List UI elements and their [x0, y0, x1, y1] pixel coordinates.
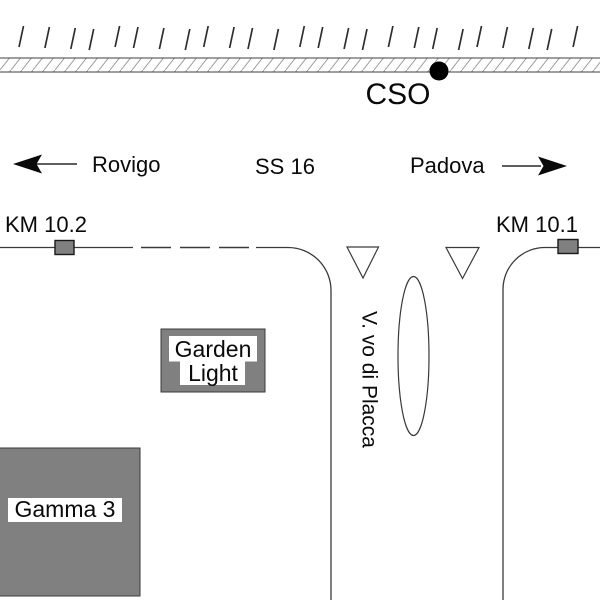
railway-tick	[19, 26, 24, 47]
railway-tick	[45, 27, 50, 48]
arrow-right-icon	[502, 157, 567, 176]
traffic-island-ellipse	[398, 277, 429, 436]
map-canvas: CSO Rovigo SS 16 Padova KM 10.2 KM 10.1	[0, 0, 600, 600]
junction-symbols: V. vo di Placca	[347, 247, 479, 448]
arrow-left-icon	[13, 155, 77, 174]
railway-band	[0, 58, 600, 72]
railway-tick	[248, 28, 253, 49]
railway-tick	[185, 29, 190, 50]
railway-tick	[159, 28, 164, 49]
railway-tick	[274, 29, 279, 50]
yield-triangle-left	[347, 247, 379, 278]
building-garden-light: Garden Light	[161, 329, 265, 392]
building-garden-light-label-line2: Light	[188, 360, 238, 386]
direction-rovigo-label: Rovigo	[92, 152, 160, 177]
cso-dot	[430, 62, 449, 81]
km-right-label: KM 10.1	[496, 212, 578, 237]
railway-tick	[230, 27, 235, 48]
main-road-left-curve-into-street	[256, 248, 331, 600]
railway-tick	[115, 26, 120, 47]
railway-tick	[363, 29, 368, 50]
railway-tick	[71, 28, 76, 49]
map-drawing: CSO Rovigo SS 16 Padova KM 10.2 KM 10.1	[0, 0, 600, 600]
street-name-label: V. vo di Placca	[358, 311, 381, 448]
railway-tick	[547, 29, 552, 50]
railway-tick	[204, 26, 209, 47]
building-gamma3: Gamma 3	[0, 448, 140, 596]
railway: CSO	[0, 26, 600, 111]
railway-tick	[318, 27, 323, 48]
railway-tick	[344, 28, 349, 49]
railway-tick	[477, 26, 482, 47]
railway-tick	[414, 27, 419, 48]
railway-tick	[89, 29, 94, 50]
direction-padova-label: Padova	[410, 153, 485, 178]
km-left-marker	[55, 241, 74, 255]
building-gamma3-label: Gamma 3	[15, 496, 116, 522]
railway-tick	[573, 26, 578, 47]
railway-tick	[433, 28, 438, 49]
cso-label: CSO	[365, 78, 430, 111]
km-markers: KM 10.2 KM 10.1	[5, 212, 578, 237]
yield-triangle-right	[446, 248, 479, 279]
railway-tick	[529, 28, 534, 49]
railway-tick	[503, 27, 508, 48]
km-left-label: KM 10.2	[5, 212, 87, 237]
railway-ticks	[19, 26, 578, 50]
km-right-marker	[558, 240, 578, 254]
railway-tick	[388, 26, 393, 47]
railway-tick	[300, 26, 305, 47]
main-road-right-curve-into-street	[503, 248, 600, 600]
railway-tick	[134, 27, 139, 48]
building-garden-light-label-line1: Garden	[175, 336, 252, 362]
road-number-label: SS 16	[255, 154, 315, 179]
railway-tick	[459, 29, 464, 50]
direction-row: Rovigo SS 16 Padova	[13, 152, 567, 179]
